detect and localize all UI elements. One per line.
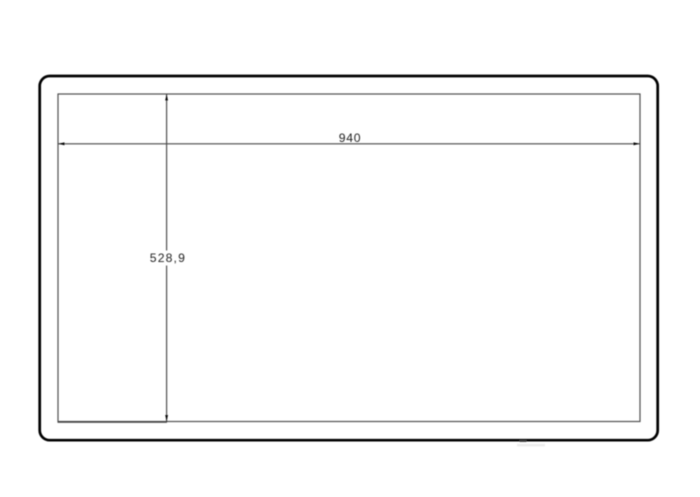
svg-text:528,9: 528,9 — [150, 251, 186, 265]
svg-text:940: 940 — [339, 131, 361, 145]
